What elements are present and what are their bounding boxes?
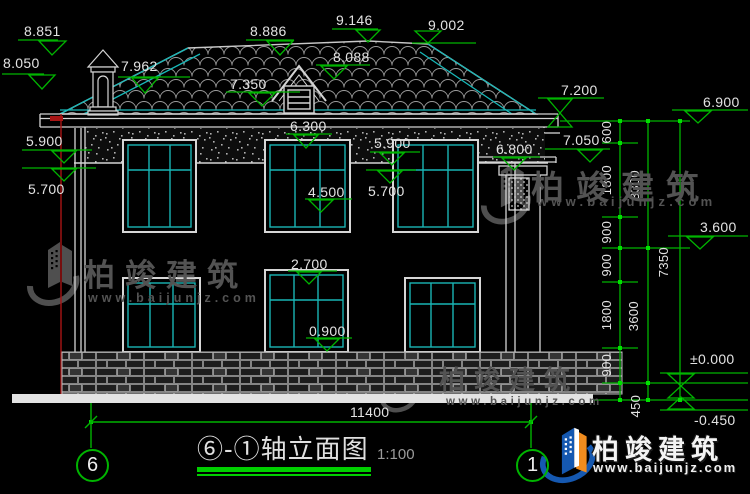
elev-label-3600: 3.600 (700, 220, 737, 235)
marker-0000 (660, 373, 748, 398)
marker-m0450 (660, 397, 748, 410)
watermark-url-top: www.baijunjz.com (537, 194, 716, 209)
window-1f-right (405, 278, 480, 352)
marker-9146 (332, 29, 380, 42)
chain-label-7350: 7350 (657, 232, 671, 292)
watermark-url-bottom: www.baijunjz.com (446, 396, 603, 408)
elevation-drawing-canvas: 8.851 8.050 7.962 8.886 9.146 9.002 8.08… (0, 0, 750, 494)
elev-label-2700: 2.700 (291, 257, 328, 272)
elev-label-5900-left: 5.900 (26, 134, 63, 149)
elev-label-0000: ±0.000 (690, 352, 735, 367)
elev-label-9002: 9.002 (428, 18, 465, 33)
watermark-brand-bottom: 柏竣建筑 (439, 360, 579, 397)
window-2f-left (123, 140, 196, 232)
elev-label-6300: 6.300 (290, 119, 327, 134)
elev-label-5700-left: 5.700 (28, 182, 65, 197)
drawing-scale: 1:100 (377, 446, 415, 463)
elev-label-6800: 6.800 (496, 142, 533, 157)
title-underline-thin (197, 474, 371, 476)
window-2f-right (393, 140, 478, 232)
chain-label-3600: 3600 (627, 286, 641, 346)
title-underline-thick (197, 467, 371, 472)
windows-second-floor (123, 140, 478, 232)
elev-label-7962: 7.962 (121, 59, 158, 74)
elev-label-8851: 8.851 (24, 24, 61, 39)
chimney (88, 50, 118, 115)
elev-label-5900-mid: 5.900 (374, 136, 411, 151)
watermark-url-left: www.baijunjz.com (88, 291, 260, 305)
marker-7200 (538, 98, 604, 127)
marker-8851 (18, 40, 66, 55)
elev-label-m0450: -0.450 (694, 413, 736, 428)
watermark-brand-left: 柏竣建筑 (84, 250, 248, 295)
axis-bubble-6: 6 (76, 449, 109, 482)
elev-label-0900: 0.900 (309, 324, 346, 339)
elev-label-8050: 8.050 (3, 56, 40, 71)
bottom-dim-label-11400: 11400 (350, 405, 389, 420)
elev-label-9146: 9.146 (336, 13, 373, 28)
marker-8050 (2, 74, 55, 89)
elev-label-7200: 7.200 (561, 83, 598, 98)
brand-url-color: www.baijunjz.com (593, 460, 737, 475)
chain-label-900-c: 900 (600, 335, 614, 395)
elev-label-7050: 7.050 (563, 133, 600, 148)
elev-label-8886: 8.886 (250, 24, 287, 39)
axis-bubble-1: 1 (516, 449, 549, 482)
elev-label-4500: 4.500 (308, 185, 345, 200)
elev-label-6900: 6.900 (703, 95, 740, 110)
elev-label-7350: 7.350 (230, 77, 267, 92)
elev-label-5700-mid: 5.700 (368, 184, 405, 199)
elev-label-8088: 8.088 (333, 50, 370, 65)
watermark-logo-left (30, 242, 76, 303)
drawing-title: ⑥-①轴立面图 (197, 435, 369, 464)
